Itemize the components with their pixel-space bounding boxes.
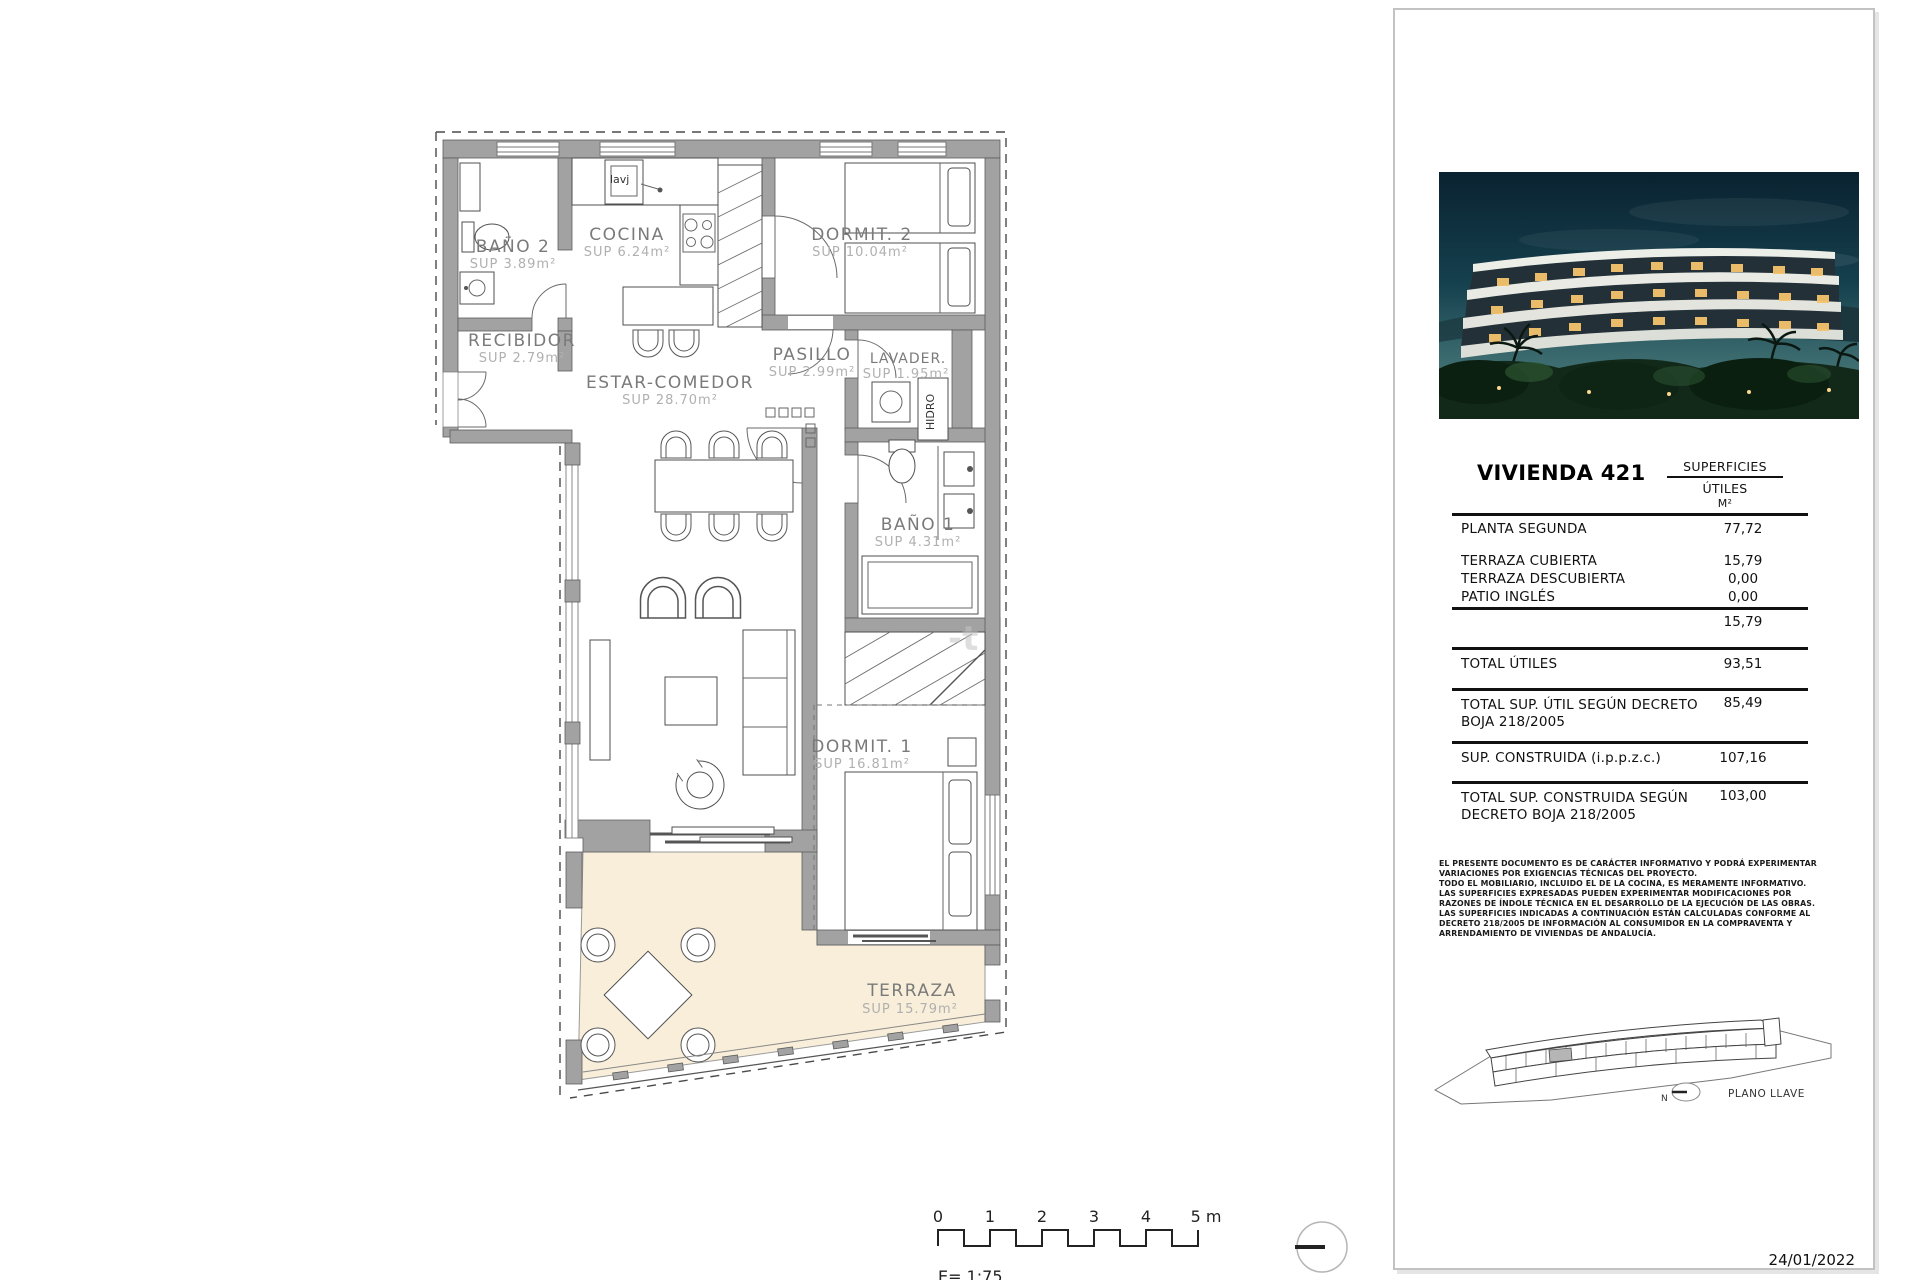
dining-set [655,431,793,541]
table-rule [1452,513,1808,516]
key-plan-label: PLANO LLAVE [1728,1088,1805,1100]
disclaimer-text: EL PRESENTE DOCUMENTO ES DE CARÁCTER INF… [1439,859,1835,939]
info-panel: VIVIENDA 421 SUPERFICIES ÚTILES M² PLANT… [1393,8,1875,1270]
room-label-terraza: TERRAZA [866,981,956,1001]
table-row-label: PLANTA SEGUNDA [1461,521,1587,537]
table-subtotal-value: 15,79 [1695,614,1791,630]
room-sup-lavadero: SUP 1.95m² [863,367,950,382]
table-rule [1452,607,1808,610]
room-label-banyo1: BAÑO 1 [881,513,956,535]
building-photo [1439,172,1859,419]
plan-date: 24/01/2022 [1769,1251,1855,1269]
room-sup-estar: SUP 28.70m² [622,393,718,408]
key-plan: N PLANO LLAVE [1431,1000,1841,1132]
room-label-dormit2: DORMIT. 2 [811,225,912,245]
room-sup-banyo1: SUP 4.31m² [875,535,962,550]
room-label-banyo2: BAÑO 2 [476,235,551,257]
window-top-banyo2 [497,142,559,156]
table-row-label: TERRAZA CUBIERTA [1461,553,1597,569]
window-west-living [565,443,580,838]
scale-tick-0: 0 [933,1207,943,1226]
scale-tick-1: 1 [985,1207,995,1226]
banyo2-fixtures [460,163,509,304]
room-sup-cocina: SUP 6.24m² [584,245,671,260]
watermark-fragment: -t [948,619,978,659]
scale-tick-3: 3 [1089,1207,1099,1226]
north-label: N [1661,1094,1668,1104]
table-col-header: SUPERFICIES [1665,459,1785,474]
table-rule [1452,688,1808,691]
disclaimer-line: LAS SUPERFICIES INDICADAS A CONTINUACIÓN… [1439,909,1835,939]
table-row-value: 77,72 [1695,521,1791,537]
table-total-label: SUP. CONSTRUIDA (i.p.p.z.c.) [1461,750,1661,766]
scale-tick-2: 2 [1037,1207,1047,1226]
table-total-value: 107,16 [1695,750,1791,766]
table-rule [1452,647,1808,650]
window-right-dormit1 [985,795,1000,895]
table-row-value: 0,00 [1695,571,1791,587]
table-row-label: TERRAZA DESCUBIERTA [1461,571,1625,587]
table-total-label: TOTAL ÚTILES [1461,656,1557,672]
unit-title: VIVIENDA 421 [1477,461,1645,485]
table-col-sub2: M² [1665,497,1785,510]
room-sup-pasillo: SUP 2.99m² [769,365,856,380]
room-sup-dormit2: SUP 10.04m² [812,245,908,260]
scale-bar: 0 1 2 3 4 5 m E= 1:75 [933,1207,1222,1280]
table-row-label: PATIO INGLÉS [1461,589,1555,605]
room-label-cocina: COCINA [589,225,664,245]
pantry-wardrobe [718,165,762,327]
room-sup-dormit1: SUP 16.81m² [814,757,910,772]
table-rule [1452,781,1808,784]
table-header-underline [1667,476,1783,478]
table-col-sub1: ÚTILES [1665,481,1785,496]
hidro-label: HIDRO [924,394,937,431]
room-label-lavadero: LAVADER. [870,351,946,367]
disclaimer-line: TODO EL MOBILIARIO, INCLUIDO EL DE LA CO… [1439,879,1835,889]
room-sup-terraza: SUP 15.79m² [862,1002,958,1017]
table-total-value: 103,00 [1695,788,1791,804]
disclaimer-line: LAS SUPERFICIES EXPRESADAS PUEDEN EXPERI… [1439,889,1835,909]
key-plan-highlighted-unit [1549,1048,1572,1062]
room-sup-banyo2: SUP 3.89m² [470,257,557,272]
floor-plan-drawing: BAÑO 2 SUP 3.89m² COCINA SUP 6.24m² DORM… [0,0,1390,1280]
window-top-cocina [600,142,675,156]
table-row-value: 0,00 [1695,589,1791,605]
room-label-estar: ESTAR-COMEDOR [586,373,754,393]
room-label-pasillo: PASILLO [773,345,852,365]
table-total-value: 85,49 [1695,695,1791,711]
table-total-label: TOTAL SUP. CONSTRUIDA SEGÚN DECRETO BOJA… [1461,790,1699,823]
floorplan-sheet: { "plan": { "rooms": { "bano2": {"name":… [0,0,1920,1280]
scale-tick-4: 4 [1141,1207,1151,1226]
scale-tick-5: 5 m [1191,1207,1222,1226]
disclaimer-line: EL PRESENTE DOCUMENTO ES DE CARÁCTER INF… [1439,859,1835,879]
table-total-label: TOTAL SUP. ÚTIL SEGÚN DECRETO BOJA 218/2… [1461,697,1699,730]
table-total-value: 93,51 [1695,656,1791,672]
table-rule [1452,741,1808,744]
scale-ratio-label: E= 1:75 [938,1267,1003,1280]
room-sup-recibidor: SUP 2.79m² [479,351,566,366]
north-indicator [1295,1222,1347,1272]
table-row-value: 15,79 [1695,553,1791,569]
room-label-recibidor: RECIBIDOR [468,331,576,351]
sink-label: lavj [610,173,629,186]
room-label-dormit1: DORMIT. 1 [811,737,912,757]
